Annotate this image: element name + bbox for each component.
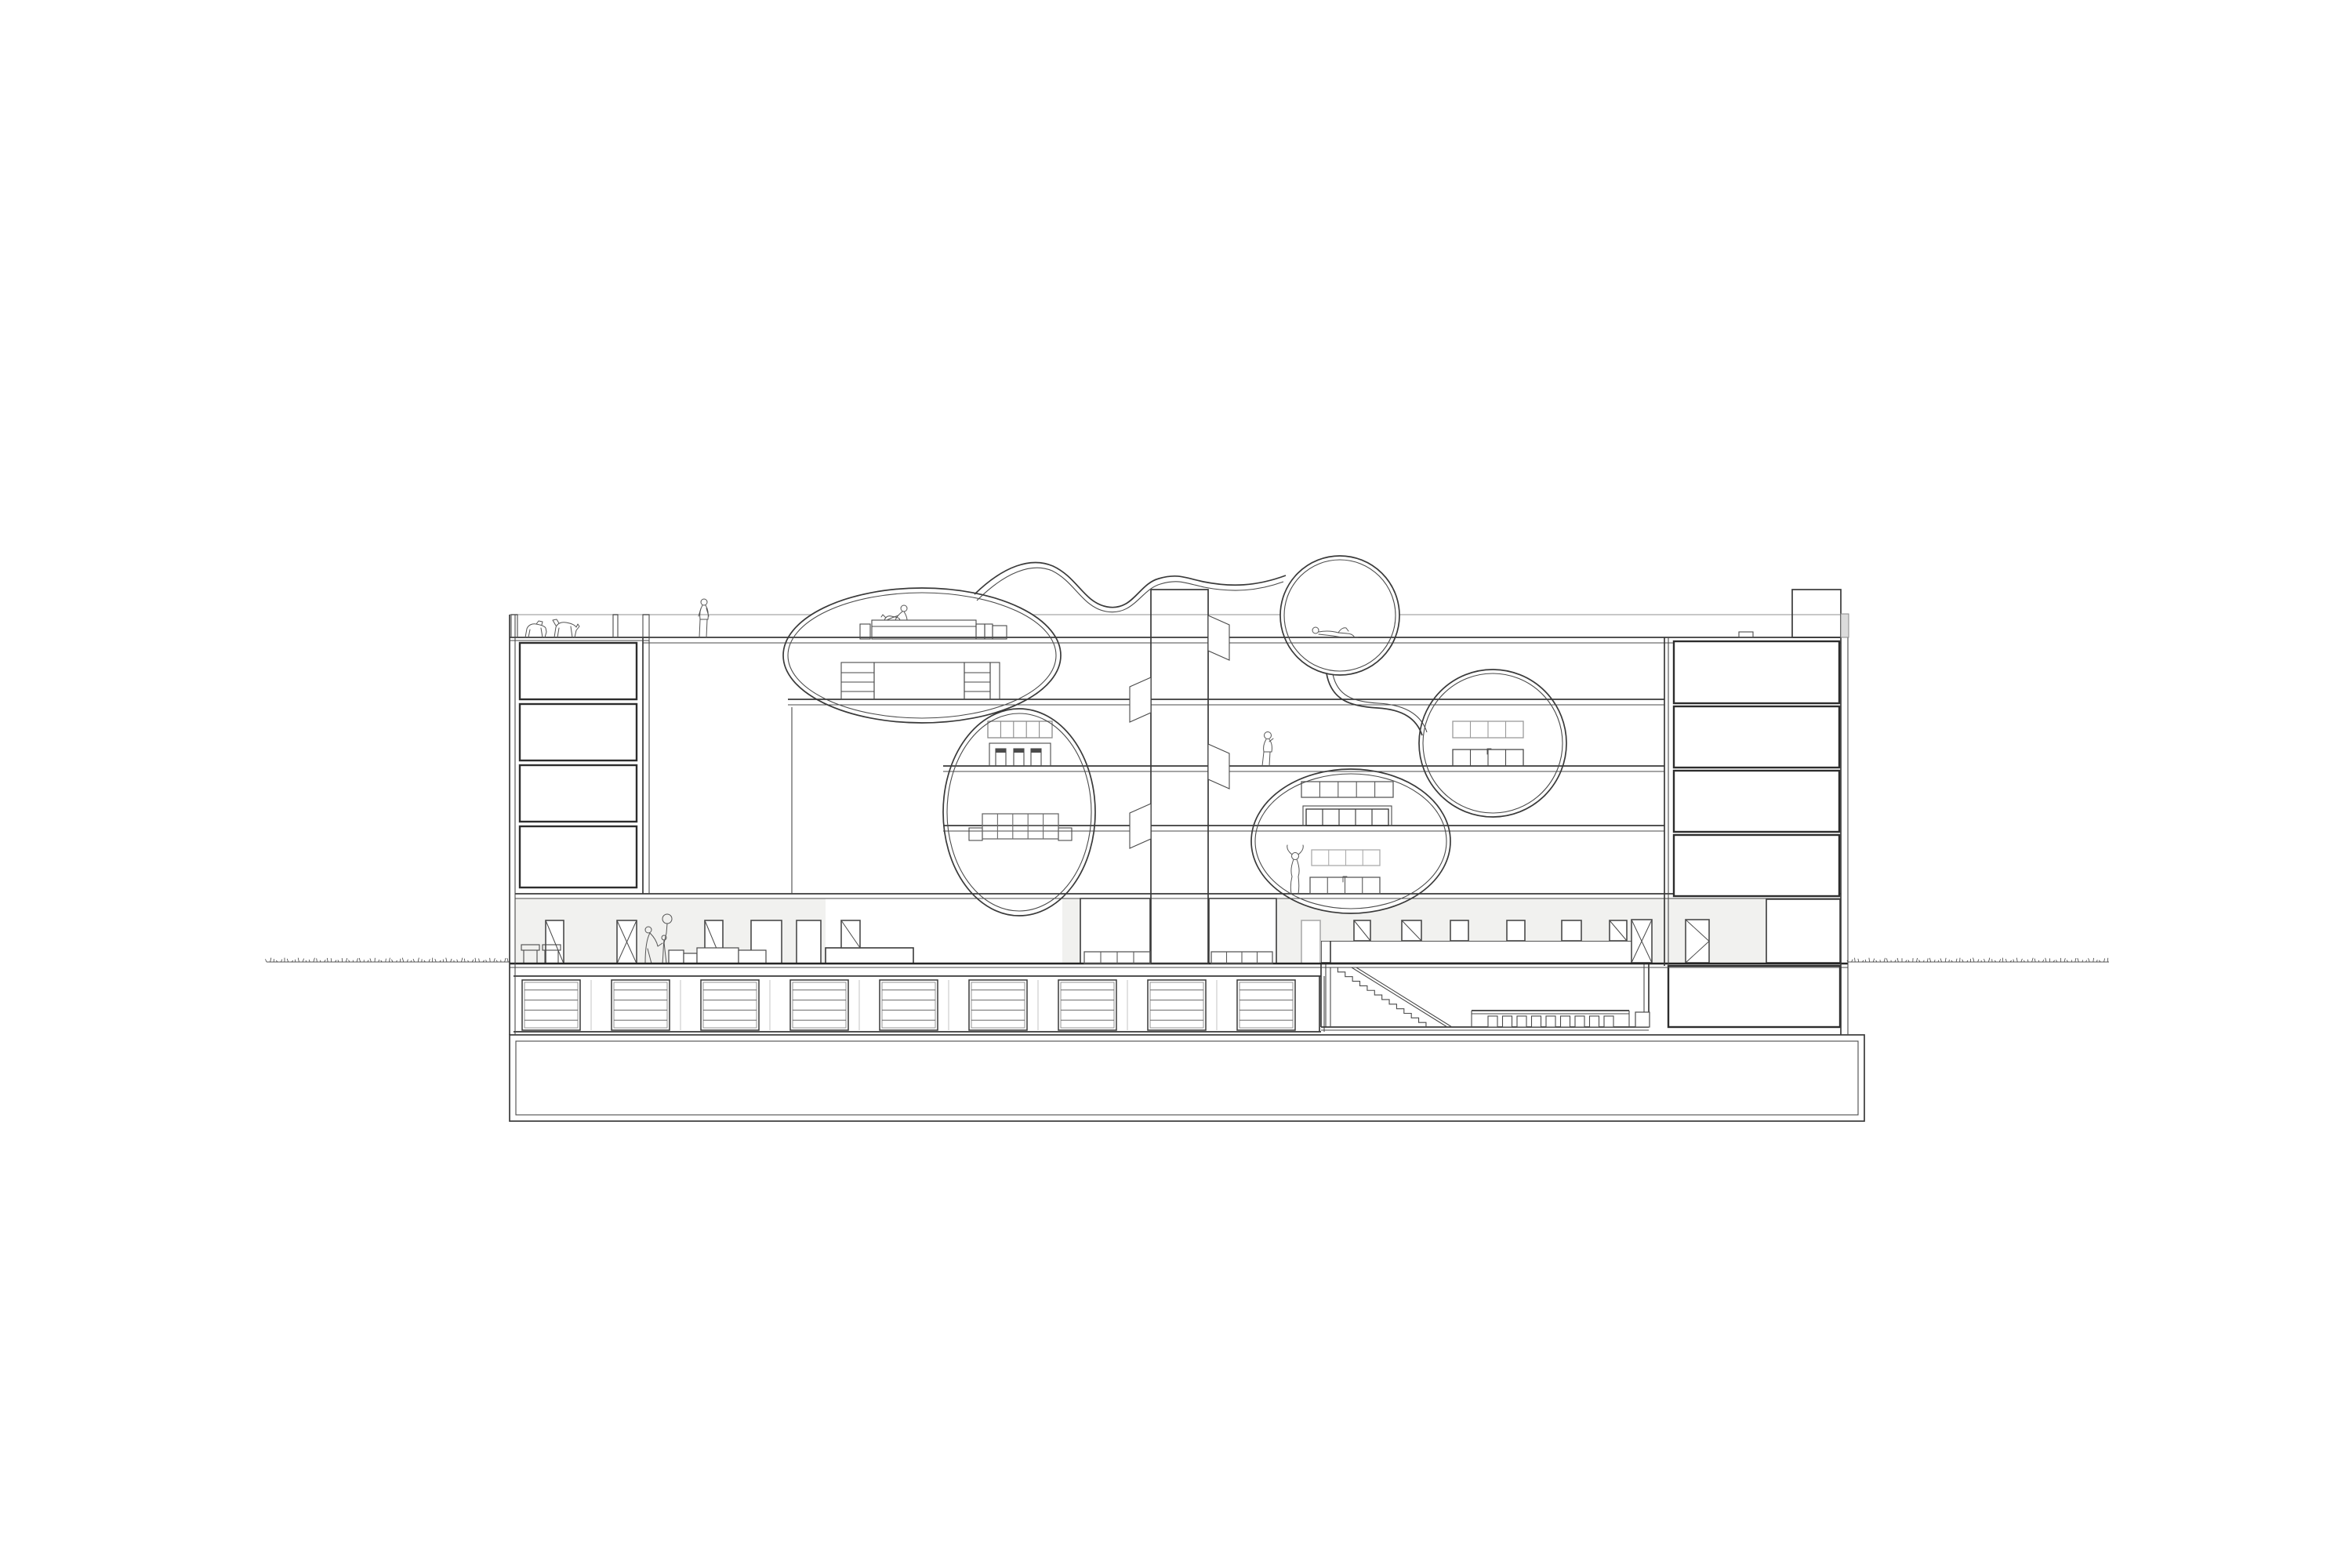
basement-storage-band xyxy=(514,976,1324,1032)
right-wing-rooms xyxy=(1674,641,1839,896)
ground-stage-platform xyxy=(826,948,913,964)
ground-floor-band xyxy=(510,615,1848,1027)
person-roof-standing xyxy=(699,599,709,637)
furniture-box xyxy=(669,950,684,964)
auditorium-stair xyxy=(1330,967,1452,1027)
dog-left-2 xyxy=(553,619,579,637)
left-wing-room xyxy=(520,765,637,822)
ground-room-left-of-shaft xyxy=(1080,898,1150,964)
basement-room-right xyxy=(1668,966,1840,1027)
left-wing xyxy=(510,615,649,1035)
left-wing-rooms xyxy=(520,643,637,887)
rooftop-block xyxy=(1792,590,1841,637)
right-wing-room xyxy=(1674,771,1839,832)
furniture-box xyxy=(697,948,739,964)
right-wing-room xyxy=(1674,835,1839,896)
left-wing-room xyxy=(520,826,637,887)
person-floor3-standing xyxy=(1262,732,1273,767)
right-wing-room xyxy=(1674,641,1839,703)
bubble-fills xyxy=(783,556,1566,916)
right-wing-room xyxy=(1674,706,1839,768)
dog-left-1 xyxy=(525,621,546,637)
open-door-panels xyxy=(1130,615,1229,848)
furniture-box xyxy=(684,953,697,964)
roof-bench xyxy=(1739,632,1753,637)
door-frame xyxy=(797,920,821,964)
left-wing-room xyxy=(520,643,637,699)
ground-room-right-wing xyxy=(1766,899,1840,963)
storage-lockers xyxy=(522,980,1295,1030)
furniture-box xyxy=(739,950,766,964)
ground-room-right-of-shaft xyxy=(1209,898,1276,964)
door-frame xyxy=(1450,920,1468,941)
bench-teeth xyxy=(1488,1016,1613,1027)
door-frame xyxy=(1301,920,1320,964)
door-frame xyxy=(1507,920,1525,941)
furniture-box xyxy=(1635,1012,1650,1027)
floor-slabs xyxy=(515,637,1841,898)
door-frame xyxy=(1686,920,1709,963)
auditorium-bench xyxy=(1472,1011,1629,1027)
door-frame xyxy=(1562,920,1581,941)
section-drawing xyxy=(0,0,2352,1568)
architectural-section-canvas xyxy=(0,0,2352,1568)
foundation-slab xyxy=(510,1035,1864,1121)
basement-auditorium xyxy=(1321,941,1649,1030)
left-wing-room xyxy=(520,704,637,760)
